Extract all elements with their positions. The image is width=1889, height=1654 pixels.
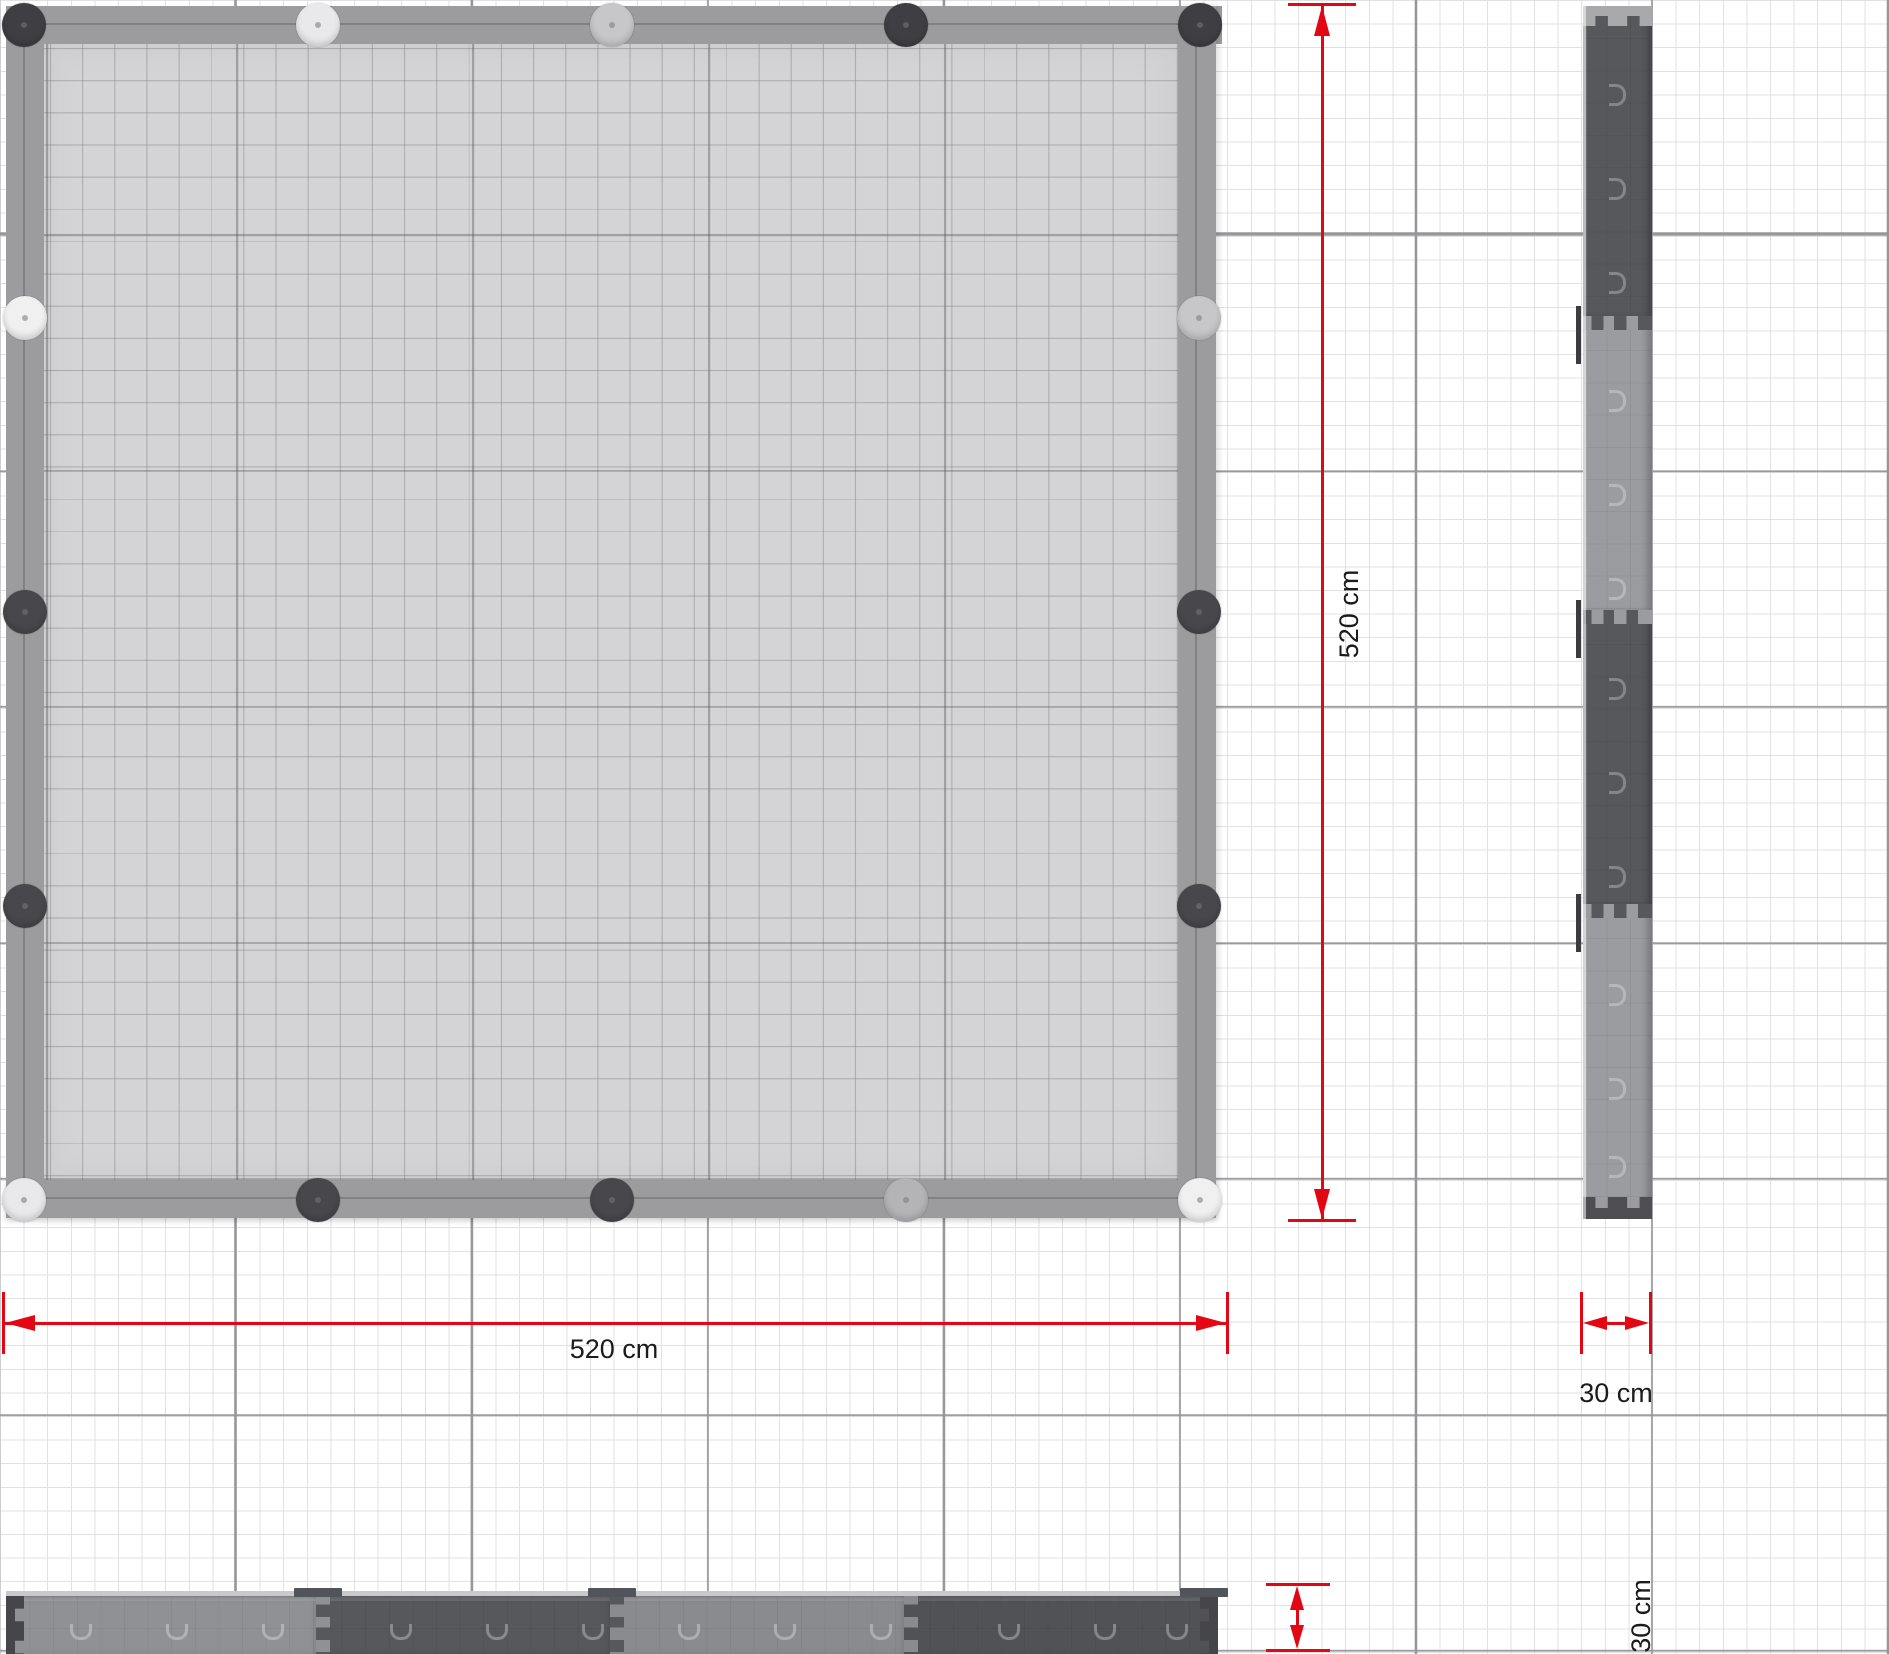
board-joint xyxy=(904,1596,918,1654)
post[interactable] xyxy=(1177,884,1221,928)
front-boards-layer xyxy=(6,1596,1218,1654)
board-joint xyxy=(1583,316,1652,330)
post[interactable] xyxy=(1177,296,1221,340)
plan-view[interactable] xyxy=(6,6,1216,1218)
front-height-label: 30 cm xyxy=(1626,1566,1656,1654)
arrow-right-icon xyxy=(1196,1315,1226,1331)
post[interactable] xyxy=(884,1178,928,1222)
dim-line xyxy=(5,1322,1226,1325)
board-joint xyxy=(610,1596,624,1654)
post[interactable] xyxy=(590,1178,634,1222)
arrow-up-icon xyxy=(1290,1586,1304,1610)
board-joint xyxy=(316,1596,330,1654)
joint-clip xyxy=(1576,306,1581,364)
arrow-left-icon xyxy=(1583,1316,1607,1330)
front-board[interactable] xyxy=(612,1596,906,1654)
post[interactable] xyxy=(884,3,928,47)
plan-height-label: 520 cm xyxy=(1334,554,1364,674)
dim-line xyxy=(1321,6,1324,1219)
side-boards-layer xyxy=(1583,6,1652,1219)
joint-tab xyxy=(1180,1588,1228,1597)
side-board[interactable] xyxy=(1583,612,1652,906)
front-view[interactable] xyxy=(6,1596,1218,1654)
arrow-down-icon xyxy=(1290,1625,1304,1649)
arrow-left-icon xyxy=(5,1315,35,1331)
post[interactable] xyxy=(1178,3,1222,47)
board-joint xyxy=(1583,904,1652,918)
post[interactable] xyxy=(296,1178,340,1222)
post[interactable] xyxy=(296,3,340,47)
drawing-canvas: 520 cm 520 cm 30 cm 30 cm xyxy=(0,0,1889,1654)
side-board[interactable] xyxy=(1583,318,1652,612)
side-top-cap xyxy=(1583,6,1652,26)
post[interactable] xyxy=(3,884,47,928)
side-view[interactable] xyxy=(1583,6,1652,1219)
dim-tick xyxy=(1649,1292,1652,1354)
arrow-up-icon xyxy=(1314,6,1330,36)
dim-tick xyxy=(1266,1649,1330,1652)
joint-clip xyxy=(1576,894,1581,952)
post[interactable] xyxy=(2,3,46,47)
front-board[interactable] xyxy=(318,1596,612,1654)
joint-clip xyxy=(1576,600,1581,658)
joint-tab xyxy=(588,1588,636,1597)
dim-tick xyxy=(1288,1219,1356,1222)
side-width-label: 30 cm xyxy=(1556,1378,1676,1408)
dim-tick xyxy=(1226,1292,1229,1354)
plan-width-label: 520 cm xyxy=(554,1334,674,1364)
plan-posts-layer xyxy=(6,6,1216,1218)
board-joint xyxy=(1583,610,1652,624)
post[interactable] xyxy=(3,590,47,634)
post[interactable] xyxy=(2,1178,46,1222)
post[interactable] xyxy=(1177,590,1221,634)
side-bottom-cap xyxy=(1583,1197,1652,1219)
post[interactable] xyxy=(3,296,47,340)
joint-tab xyxy=(294,1588,342,1597)
arrow-down-icon xyxy=(1314,1189,1330,1219)
post[interactable] xyxy=(590,3,634,47)
arrow-right-icon xyxy=(1625,1316,1649,1330)
post[interactable] xyxy=(1178,1178,1222,1222)
